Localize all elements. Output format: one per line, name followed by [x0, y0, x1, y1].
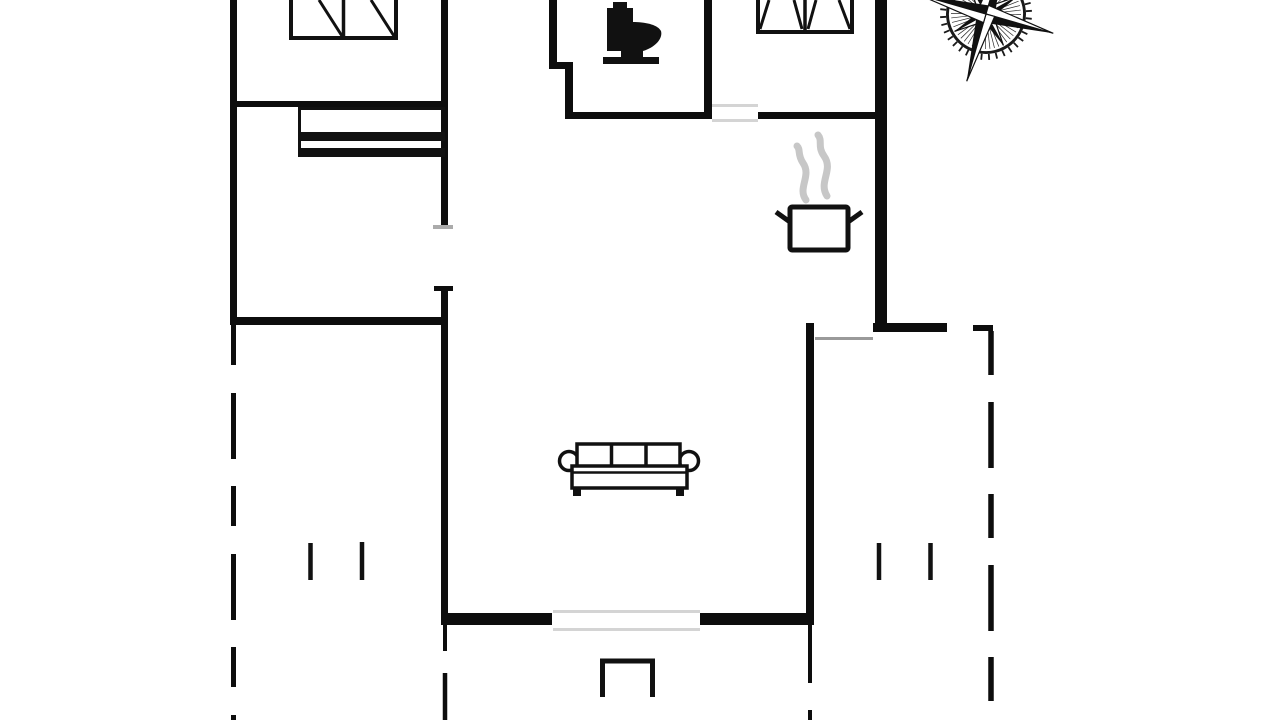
living-east-wall: [806, 323, 814, 625]
terrace-corner-dash: [973, 325, 993, 331]
patio-door-line-a: [553, 610, 700, 613]
left-outer-wall: [230, 0, 237, 325]
patio-door-line-b: [553, 628, 700, 631]
door-jamb-mark-bottom: [434, 286, 453, 291]
hall-living-wall-lower: [441, 286, 448, 625]
right-outer-wall: [875, 0, 887, 332]
south-east-wall-stub: [808, 625, 812, 683]
bedroom1-south-wall: [230, 101, 448, 107]
terrace-door-line: [815, 337, 873, 340]
living-south-wall-east: [700, 613, 814, 625]
door-jamb-mark-top: [433, 225, 453, 229]
sofa-icon: [560, 444, 699, 496]
bedroom2-door-line-b: [712, 119, 758, 122]
living-south-wall-west: [441, 613, 552, 625]
terrace-north-wall: [873, 323, 947, 332]
bath-south-wall: [565, 112, 712, 119]
south-west-wall-stub: [443, 625, 447, 651]
bedroom2-south-wall: [758, 112, 887, 119]
left-room-south-wall: [230, 317, 448, 325]
floor-plan: [0, 0, 1280, 720]
bed-icon-left: [291, 0, 396, 38]
bedroom2-door-line-a: [712, 104, 758, 107]
bed-icon-right: [758, 0, 852, 32]
bath-west-wall-lower: [565, 62, 573, 114]
bedroom-hall-wall-upper: [441, 0, 448, 226]
bath-east-wall: [704, 0, 712, 119]
floor-plan-page: [0, 0, 1280, 720]
bath-west-wall-upper: [549, 0, 557, 66]
